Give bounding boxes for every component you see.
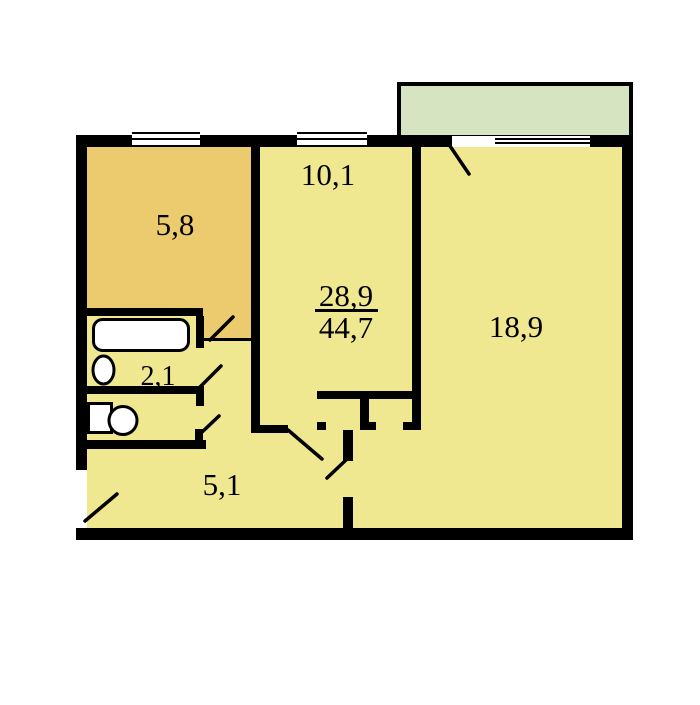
floor-plan-page: 5,8 10,1 18,9 2,1 5,1 28,9 44,7 (0, 0, 700, 700)
bigroom-window-glass (495, 136, 590, 147)
wall-closet-stub-middle (364, 422, 376, 430)
wall-nook-bottom (251, 425, 288, 433)
wall-bathroom-right-upper (196, 316, 204, 348)
kitchen-area-label: 5,8 (156, 207, 195, 242)
wall-hall-bigroom-lower (343, 497, 353, 534)
midroom-window-glass (297, 127, 367, 145)
wall-midroom-left (251, 146, 260, 433)
kitchen-window-glass (132, 127, 200, 145)
large-room-area-label: 18,9 (489, 309, 543, 344)
kitchen-window (132, 127, 200, 145)
wall-kitchen-bottom (87, 308, 203, 316)
wall-toilet-bottom (87, 440, 206, 449)
wall-hall-bigroom-upper (343, 430, 353, 461)
small-room-area-label: 10,1 (301, 157, 355, 192)
floor-plan: 5,8 10,1 18,9 2,1 5,1 28,9 44,7 (0, 0, 700, 700)
wall-closet-stub-left (317, 422, 326, 430)
balcony (397, 82, 633, 144)
wall-left (76, 135, 87, 470)
kitchen-window-line (132, 132, 200, 134)
wall-rooms-divider (412, 146, 421, 430)
bathtub (94, 320, 189, 351)
wash-basin (93, 356, 114, 384)
total-area-label: 44,7 (319, 310, 373, 345)
kitchen-window-line (132, 138, 200, 140)
bigroom-window-line (495, 142, 590, 144)
area-summary: 28,9 44,7 (315, 278, 378, 345)
midroom-window-line (297, 132, 367, 134)
bigroom-window (495, 136, 590, 147)
midroom-window-line (297, 138, 367, 140)
bathroom-area-label: 2,1 (141, 361, 176, 392)
bigroom-window-line (495, 138, 590, 140)
hallway-area-label: 5,1 (203, 467, 242, 502)
wall-toilet-right-upper (196, 394, 204, 406)
toilet-bowl (109, 407, 137, 435)
living-area-label: 28,9 (319, 278, 373, 313)
balcony-door-opening (452, 136, 495, 147)
midroom-window (297, 127, 367, 145)
wall-closet-top (317, 391, 421, 399)
wall-bottom (76, 528, 633, 540)
wall-right (622, 135, 633, 540)
